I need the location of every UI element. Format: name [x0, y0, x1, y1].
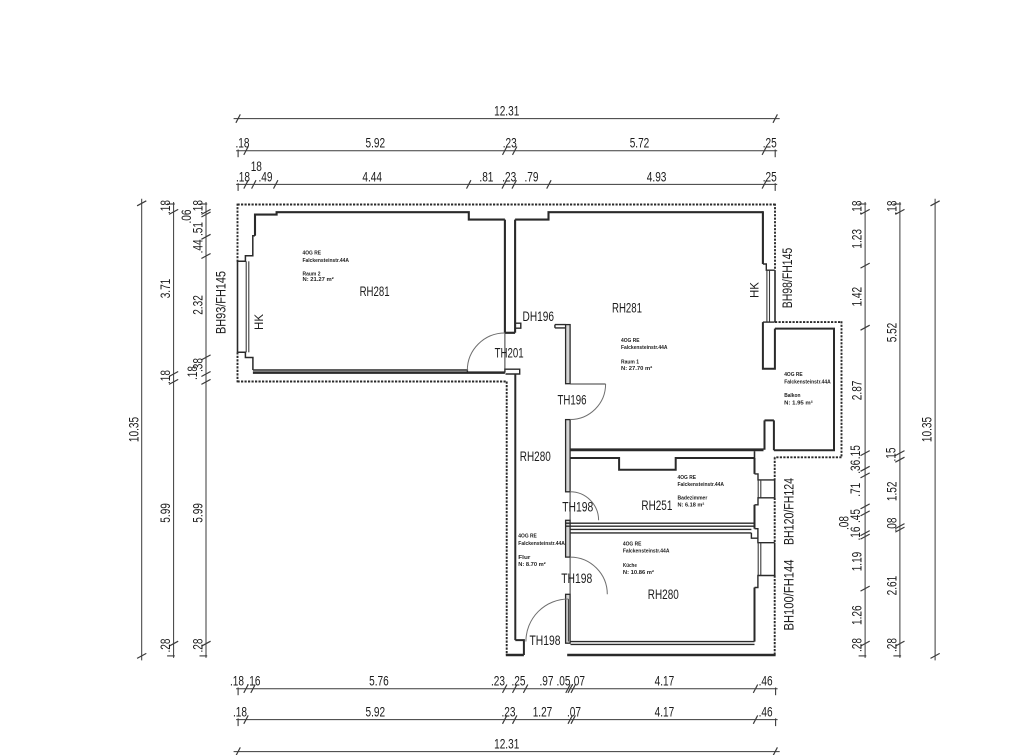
svg-text:4.44: 4.44 [362, 169, 382, 185]
svg-text:.23: .23 [502, 169, 516, 185]
svg-text:1.52: 1.52 [885, 481, 901, 501]
svg-text:.18: .18 [236, 169, 250, 185]
svg-text:RH281: RH281 [360, 284, 390, 299]
svg-text:.08: .08 [885, 517, 901, 531]
svg-text:4.93: 4.93 [647, 169, 667, 185]
svg-text:.97: .97 [540, 674, 554, 690]
svg-text:N: 8.70 m²: N: 8.70 m² [518, 562, 546, 568]
svg-text:Falckensteinstr.44A: Falckensteinstr.44A [621, 345, 668, 351]
svg-text:4OG RE: 4OG RE [784, 372, 803, 378]
svg-text:4OG RE: 4OG RE [621, 338, 640, 344]
svg-text:4.17: 4.17 [655, 705, 675, 721]
svg-text:N: 6.18 m²: N: 6.18 m² [678, 502, 705, 508]
svg-text:.16: .16 [247, 674, 261, 690]
svg-text:TH198: TH198 [561, 571, 592, 586]
svg-text:BH98/FH145: BH98/FH145 [780, 248, 795, 309]
svg-text:N: 1.95 m²: N: 1.95 m² [784, 400, 813, 406]
svg-text:12.31: 12.31 [494, 104, 519, 120]
svg-text:Falckensteinstr.44A: Falckensteinstr.44A [518, 541, 565, 547]
svg-text:Balkon: Balkon [784, 393, 800, 399]
svg-text:10.35: 10.35 [920, 417, 936, 442]
svg-text:.28: .28 [158, 638, 174, 652]
svg-text:.18: .18 [885, 200, 901, 214]
svg-text:.25: .25 [763, 169, 777, 185]
svg-text:N: 27.70 m²: N: 27.70 m² [621, 366, 652, 372]
svg-text:RH281: RH281 [612, 301, 642, 316]
svg-text:1.27: 1.27 [533, 705, 553, 721]
svg-text:5.92: 5.92 [366, 136, 386, 152]
svg-text:1.19: 1.19 [850, 552, 866, 572]
svg-text:.05: .05 [557, 674, 571, 690]
svg-text:5.76: 5.76 [369, 674, 389, 690]
svg-text:4OG RE: 4OG RE [303, 251, 322, 257]
svg-text:.18: .18 [233, 705, 247, 721]
svg-text:BH120/FH124: BH120/FH124 [781, 478, 796, 545]
svg-text:RH251: RH251 [641, 498, 672, 513]
svg-text:Falckensteinstr.44A: Falckensteinstr.44A [303, 258, 350, 264]
svg-text:.44: .44 [191, 239, 207, 253]
svg-text:2.61: 2.61 [885, 576, 901, 596]
svg-text:.18: .18 [230, 674, 244, 690]
svg-text:.08: .08 [837, 516, 853, 530]
svg-text:.23: .23 [491, 674, 505, 690]
svg-text:.07: .07 [567, 705, 581, 721]
svg-text:Falckensteinstr.44A: Falckensteinstr.44A [623, 549, 670, 555]
svg-text:.51: .51 [191, 222, 207, 236]
svg-text:.15: .15 [848, 445, 864, 459]
svg-text:TH201: TH201 [495, 346, 524, 361]
svg-text:4OG RE: 4OG RE [623, 542, 642, 548]
svg-text:5.92: 5.92 [366, 705, 386, 721]
svg-text:RH280: RH280 [520, 449, 551, 464]
svg-text:4.17: 4.17 [655, 674, 675, 690]
svg-text:BH100/FH144: BH100/FH144 [781, 559, 796, 630]
svg-text:RH280: RH280 [648, 587, 679, 602]
svg-text:.46: .46 [759, 674, 773, 690]
svg-text:.23: .23 [503, 136, 517, 152]
svg-text:.28: .28 [191, 638, 207, 652]
svg-text:4OG RE: 4OG RE [518, 534, 537, 540]
svg-text:Küche: Küche [623, 563, 637, 569]
svg-text:.18: .18 [158, 370, 174, 384]
svg-text:.25: .25 [512, 674, 526, 690]
svg-text:1.42: 1.42 [850, 287, 866, 307]
svg-text:.18: .18 [236, 136, 250, 152]
svg-text:.25: .25 [763, 136, 777, 152]
svg-text:.23: .23 [502, 705, 516, 721]
svg-text:2.87: 2.87 [850, 381, 866, 401]
svg-text:DH196: DH196 [523, 309, 555, 324]
svg-text:HK: HK [748, 282, 762, 298]
svg-text:.81: .81 [479, 169, 493, 185]
svg-text:Falckensteinstr.44A: Falckensteinstr.44A [784, 379, 831, 385]
svg-text:5.52: 5.52 [885, 323, 901, 343]
svg-text:Falckensteinstr.44A: Falckensteinstr.44A [678, 482, 725, 488]
svg-text:12.31: 12.31 [494, 737, 519, 753]
svg-text:1.26: 1.26 [850, 605, 866, 625]
svg-text:N: 10.86 m²: N: 10.86 m² [623, 570, 654, 576]
svg-text:.18: .18 [850, 200, 866, 214]
svg-text:10.35: 10.35 [126, 417, 142, 442]
svg-text:.07: .07 [571, 674, 585, 690]
svg-text:.36: .36 [848, 460, 864, 474]
svg-text:.28: .28 [885, 638, 901, 652]
svg-text:TH198: TH198 [530, 633, 561, 648]
svg-text:BH93/FH145: BH93/FH145 [213, 271, 228, 334]
svg-text:5.99: 5.99 [191, 503, 207, 523]
svg-text:.06: .06 [179, 209, 195, 223]
svg-text:HK: HK [252, 314, 266, 330]
svg-text:.71: .71 [848, 483, 864, 497]
svg-text:1.23: 1.23 [850, 229, 866, 249]
svg-text:Flur: Flur [518, 555, 531, 561]
svg-text:.18: .18 [185, 366, 201, 380]
svg-text:Raum 1: Raum 1 [621, 359, 639, 365]
svg-text:.49: .49 [259, 169, 273, 185]
svg-text:5.99: 5.99 [158, 503, 174, 523]
svg-text:.79: .79 [525, 169, 539, 185]
svg-text:N: 21.27 m²: N: 21.27 m² [303, 277, 334, 283]
svg-text:.46: .46 [759, 705, 773, 721]
svg-text:2.32: 2.32 [191, 295, 207, 315]
svg-text:4OG RE: 4OG RE [678, 475, 697, 481]
svg-text:Badezimmer: Badezimmer [678, 495, 709, 501]
svg-text:.18: .18 [158, 200, 174, 214]
svg-text:TH198: TH198 [562, 500, 593, 515]
svg-text:.28: .28 [850, 638, 866, 652]
svg-text:5.72: 5.72 [630, 136, 650, 152]
svg-text:.15: .15 [884, 447, 900, 461]
svg-text:TH196: TH196 [558, 393, 587, 408]
svg-text:3.71: 3.71 [158, 279, 174, 299]
